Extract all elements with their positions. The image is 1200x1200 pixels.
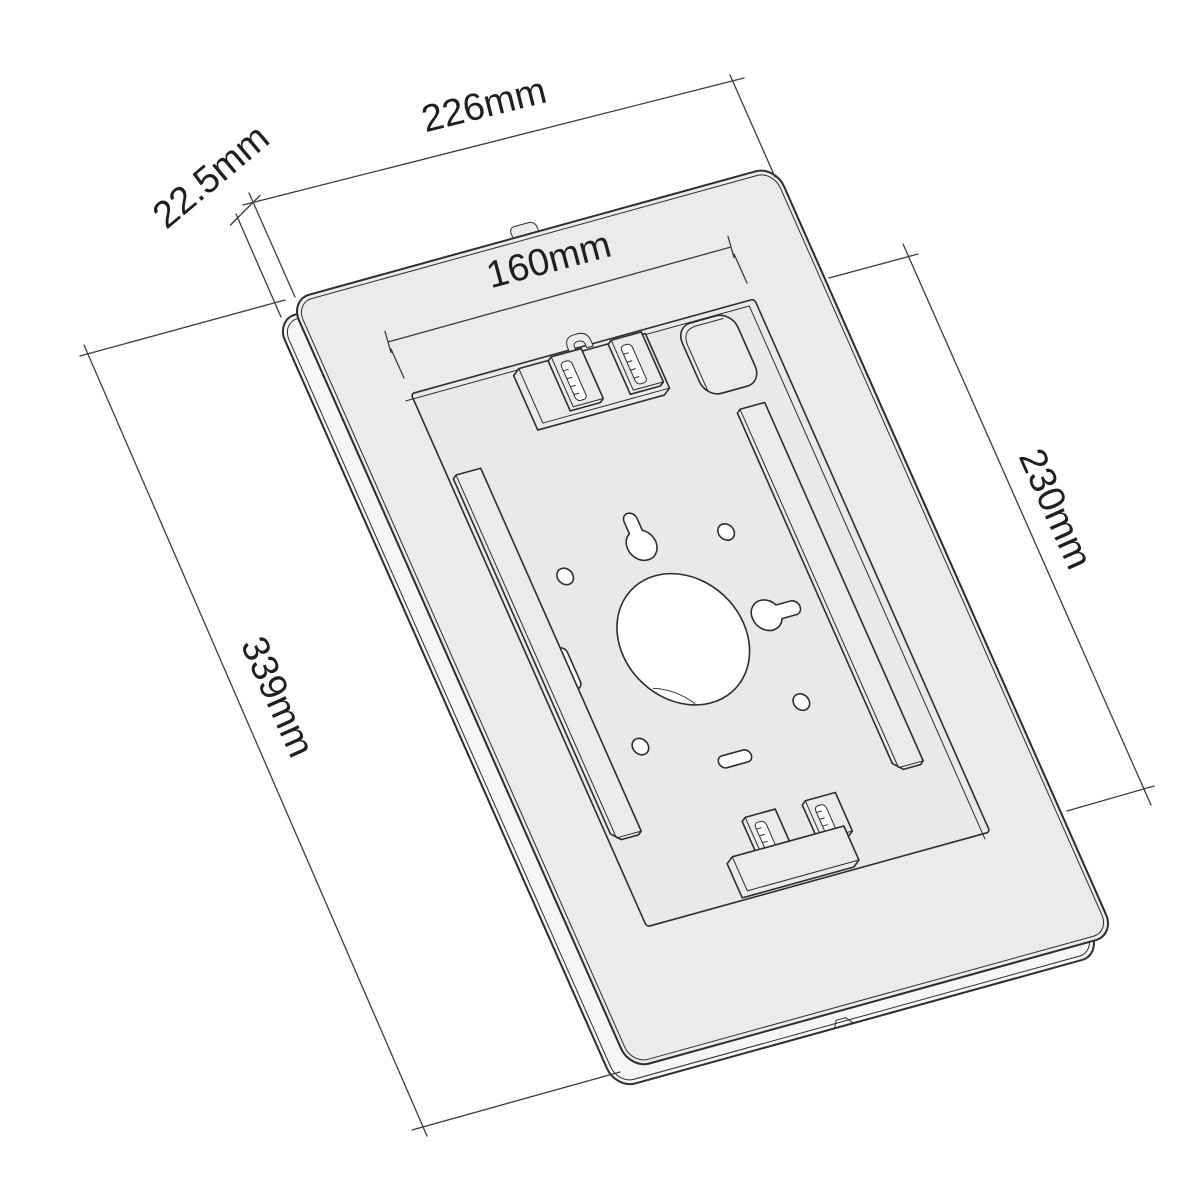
ext-line-width-left — [249, 193, 295, 297]
ext-line-inner-height-top — [829, 254, 918, 278]
technical-drawing-page: 226mm 22.5mm 160mm 230mm 339mm — [0, 0, 1200, 1200]
ext-line-depth — [236, 214, 281, 317]
dim-label-inner-height: 230mm — [1010, 443, 1100, 576]
enclosure-drawing: 226mm 22.5mm 160mm 230mm 339mm — [0, 0, 1200, 1200]
dim-label-outer-height: 339mm — [232, 631, 322, 764]
enclosure-model — [265, 156, 1121, 1089]
dim-line-case-depth — [231, 195, 261, 225]
ext-line-inner-height-bottom — [1067, 786, 1154, 811]
dim-label-case-depth: 22.5mm — [145, 117, 277, 237]
ext-line-outer-height-bottom — [412, 1072, 620, 1130]
ext-line-width-right — [730, 75, 775, 177]
ext-line-outer-height-top — [80, 300, 285, 356]
dim-label-outer-width: 226mm — [418, 70, 551, 141]
